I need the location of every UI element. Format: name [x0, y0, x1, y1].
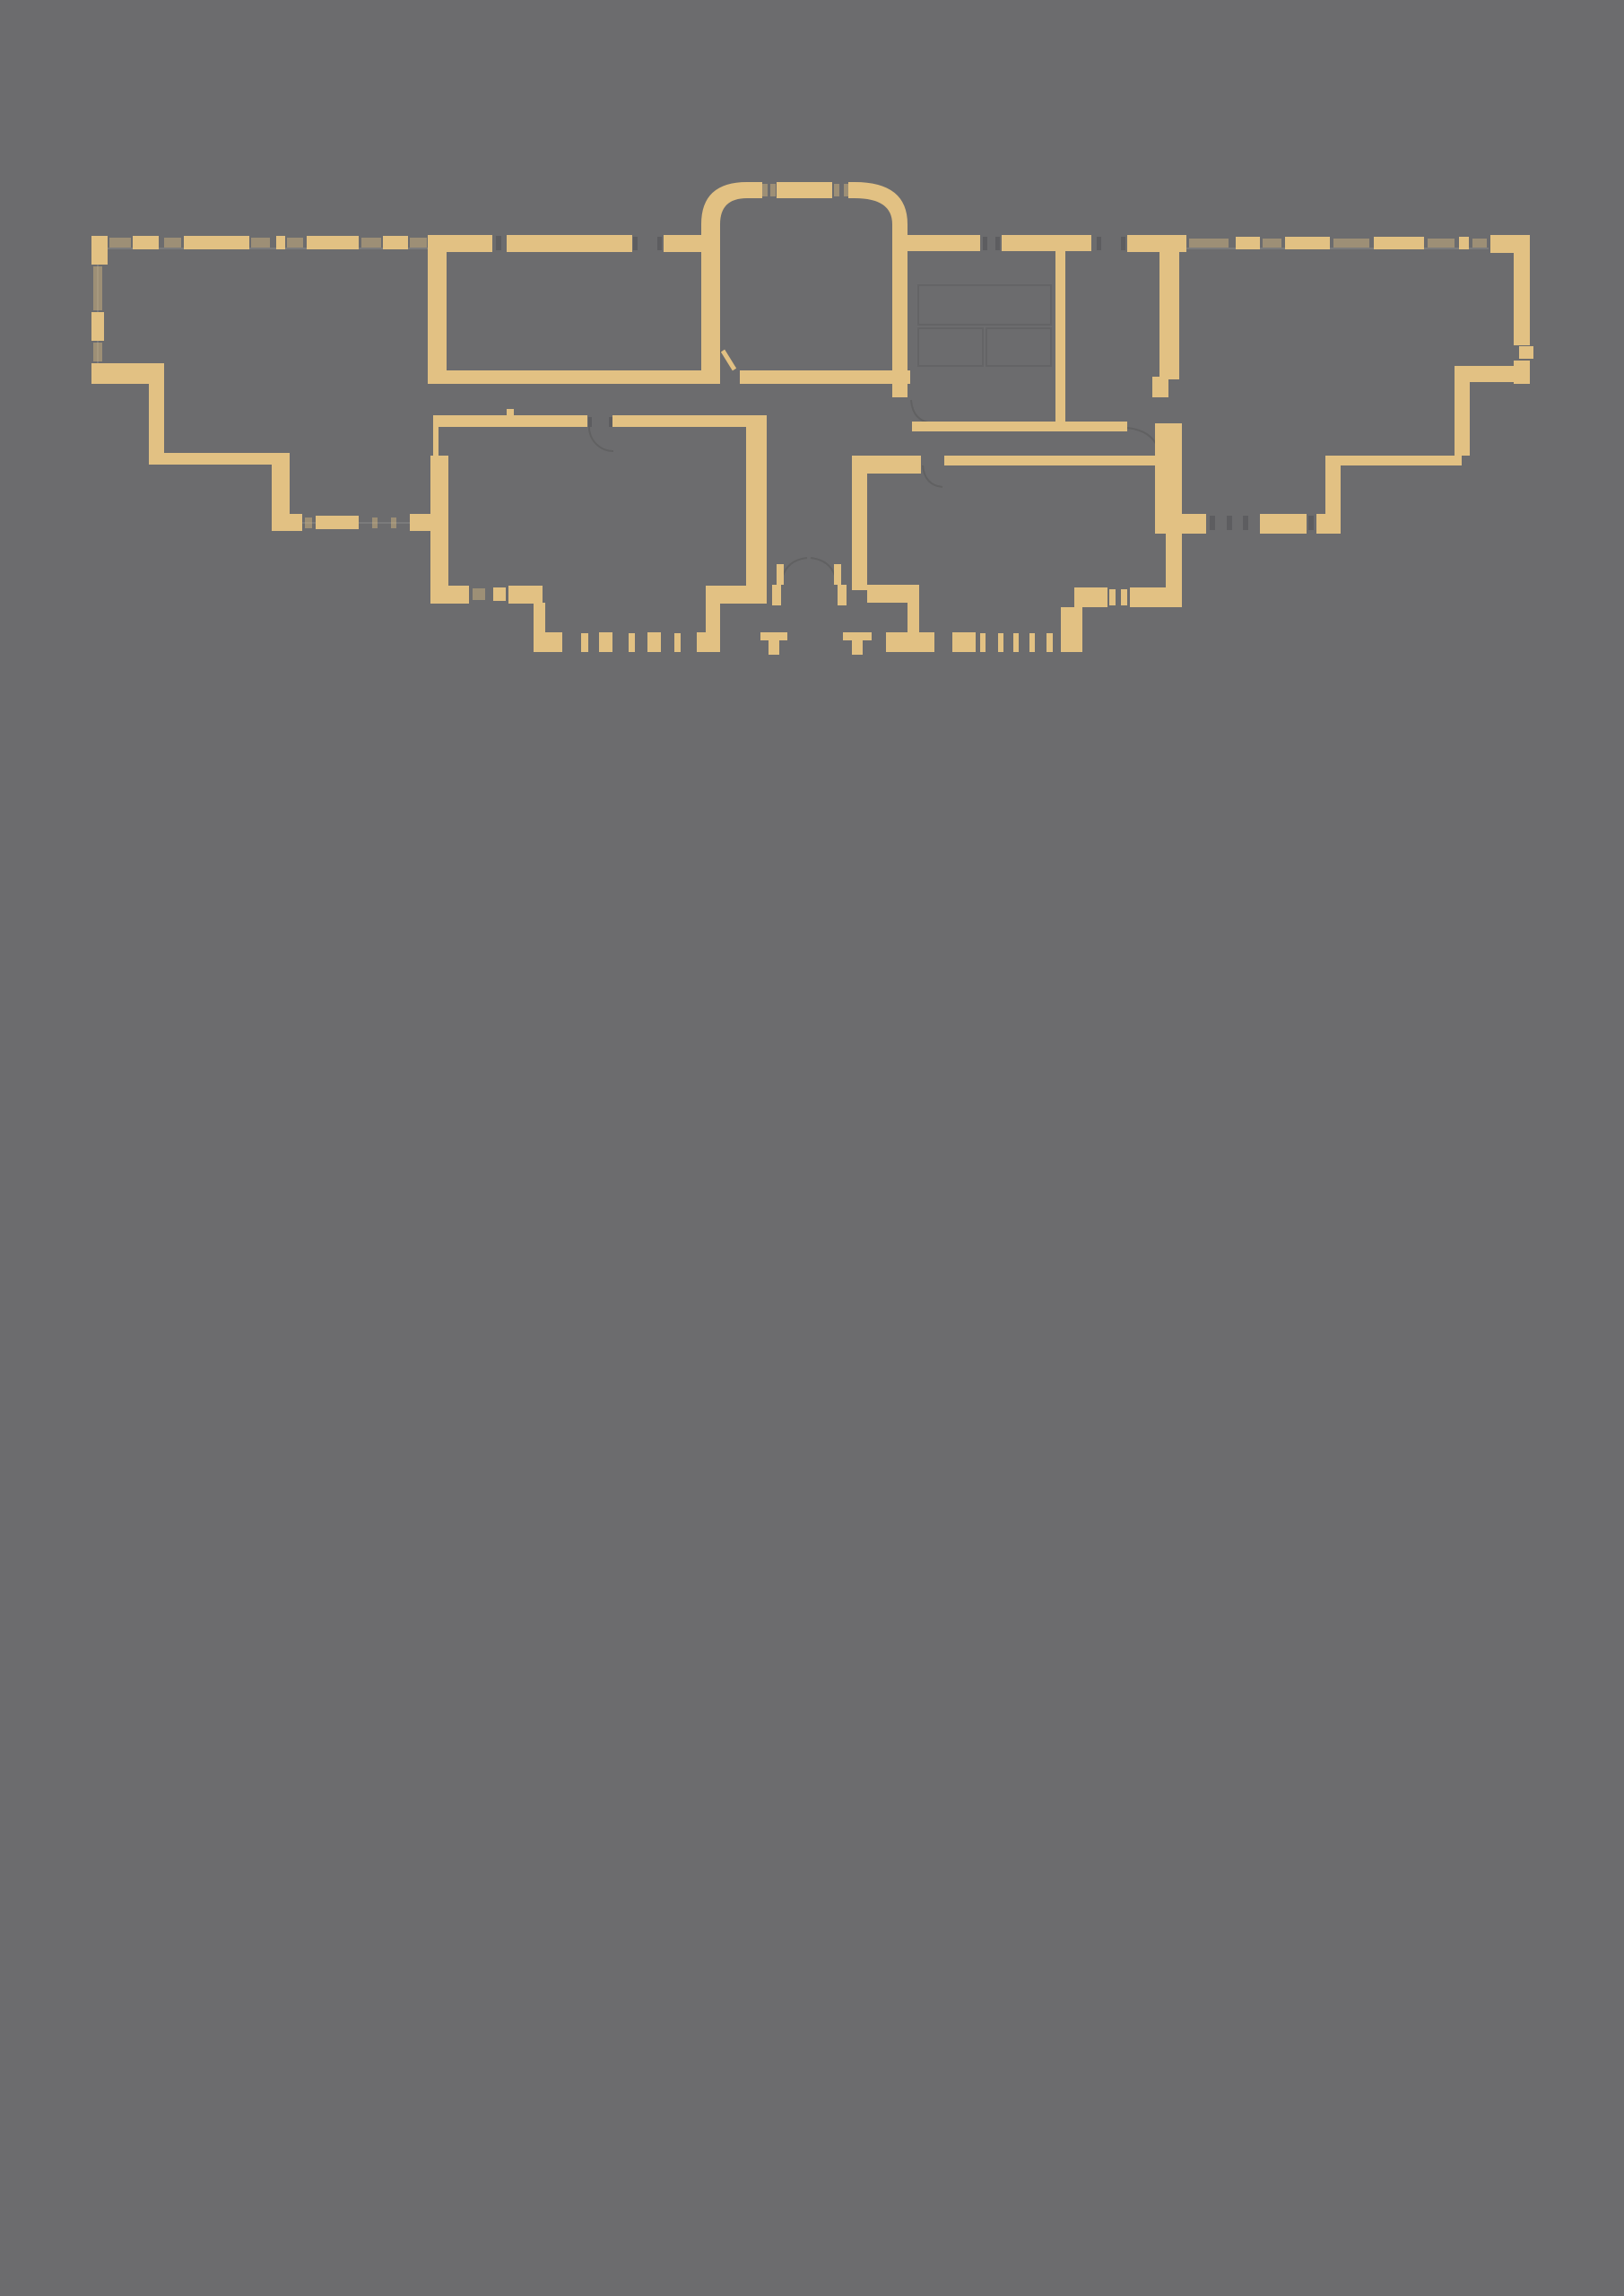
window-dash [251, 238, 270, 248]
wall-segment [428, 235, 447, 384]
wall-segment [1519, 346, 1533, 359]
wall-segment [777, 564, 784, 585]
wall-segment [1316, 514, 1341, 534]
wall-segment [1166, 534, 1182, 607]
wall-segment [534, 632, 562, 652]
railing-baluster [998, 633, 1003, 652]
door-jamb-tick [633, 237, 638, 250]
door-jamb-tick [496, 236, 501, 250]
window-dash [473, 588, 485, 600]
window-dash [391, 517, 396, 528]
wall-segment [184, 236, 249, 249]
wall-segment [133, 236, 159, 249]
wall-segment [701, 230, 720, 384]
door-jamb-tick [588, 417, 592, 427]
railing-baluster [599, 632, 612, 652]
wall-segment [276, 236, 285, 249]
door-jamb-tick [983, 237, 987, 250]
window-dash [93, 266, 102, 310]
door-jamb-tick [1210, 516, 1215, 530]
window-dash [762, 184, 768, 196]
wall-segment [1002, 235, 1091, 251]
door-jamb-tick [995, 237, 1000, 250]
wall-segment [1182, 514, 1206, 534]
window-dash [1263, 239, 1281, 248]
wall-segment [507, 235, 632, 252]
wall-segment [316, 516, 359, 529]
railing-baluster [1029, 633, 1035, 652]
window-dash [305, 517, 312, 528]
wall-segment [697, 632, 720, 652]
door-jamb-tick [1227, 516, 1232, 530]
wall-segment [1159, 251, 1179, 379]
wall-segment [1127, 235, 1186, 252]
door-jamb-tick [1097, 237, 1101, 250]
wall-segment [852, 456, 867, 590]
wall-segment [91, 236, 108, 265]
wall-segment [149, 384, 164, 465]
door-jamb-tick [657, 237, 662, 250]
wall-segment [507, 409, 514, 427]
wall-segment [1455, 382, 1470, 456]
railing-baluster [1074, 587, 1107, 607]
wall-segment [447, 235, 492, 252]
wall-segment [435, 370, 706, 384]
wall-segment [772, 585, 781, 605]
wall-segment [664, 235, 703, 252]
wall-segment [272, 514, 302, 531]
railing-baluster [1109, 589, 1116, 605]
wall-segment [912, 422, 1127, 431]
window-dash [770, 184, 776, 196]
railing-baluster [581, 633, 588, 652]
page [0, 0, 1624, 2296]
wall-segment [706, 586, 767, 604]
wall-segment [865, 456, 921, 474]
door-jamb-tick [1121, 237, 1125, 250]
railing-baluster [629, 633, 635, 652]
wall-segment [1285, 237, 1330, 249]
window-dash [164, 238, 181, 248]
wall-segment [746, 415, 767, 587]
wall-segment [534, 603, 545, 634]
railing-baluster [1130, 587, 1166, 607]
wall-segment [1459, 237, 1469, 249]
door-jamb-tick [1243, 516, 1248, 530]
window-dash [1472, 239, 1487, 248]
door-jamb-tick [1308, 516, 1314, 530]
window-dash [1333, 239, 1369, 248]
wall-segment [493, 587, 506, 601]
railing-baluster [980, 633, 986, 652]
wall-segment [1152, 377, 1168, 397]
wall-segment [91, 363, 164, 384]
wall-segment [272, 465, 290, 516]
wall-segment [514, 415, 587, 427]
wall-segment [383, 236, 408, 249]
background [0, 0, 1624, 2296]
railing-baluster [1013, 633, 1019, 652]
railing-baluster [674, 633, 681, 652]
wall-segment [944, 456, 1155, 465]
railing-baluster [1121, 589, 1127, 605]
wall-segment [892, 230, 908, 397]
wall-segment [1155, 423, 1182, 534]
railing-baluster [1061, 607, 1082, 652]
window-dash [1428, 239, 1455, 248]
wall-segment [155, 453, 290, 465]
wall-segment [740, 370, 910, 384]
window-dash [109, 238, 131, 248]
wall-segment [430, 456, 448, 587]
floor-plan-svg [0, 0, 1624, 2296]
railing-baluster [1046, 633, 1053, 652]
wall-segment [91, 312, 104, 341]
wall-segment [1514, 235, 1530, 345]
window-dash [410, 238, 427, 248]
railing-baluster [886, 632, 934, 652]
wall-segment [834, 564, 841, 585]
railing-baluster [647, 632, 661, 652]
wall-segment [437, 415, 508, 427]
wall-segment [867, 585, 919, 603]
wall-segment [508, 586, 543, 604]
wall-segment [1055, 251, 1065, 426]
wall-segment [908, 235, 980, 251]
wall-segment [1236, 237, 1260, 249]
railing-baluster [852, 639, 863, 655]
wall-segment [838, 585, 847, 605]
wall-segment [1374, 237, 1424, 249]
railing-baluster [952, 632, 976, 652]
window-dash [93, 343, 102, 361]
wall-segment [908, 603, 919, 632]
wall-segment [1341, 456, 1462, 465]
railing-baluster [769, 639, 779, 655]
window-dash [1189, 239, 1229, 248]
wall-segment [777, 182, 832, 198]
wall-segment [1455, 366, 1530, 382]
window-dash [287, 238, 303, 248]
wall-segment [430, 586, 469, 604]
wall-segment [612, 415, 746, 427]
wall-segment [1260, 514, 1307, 534]
window-dash [834, 184, 839, 196]
window-dash [372, 517, 378, 528]
wall-segment [307, 236, 359, 249]
window-dash [361, 238, 381, 248]
door-jamb-tick [609, 417, 612, 427]
